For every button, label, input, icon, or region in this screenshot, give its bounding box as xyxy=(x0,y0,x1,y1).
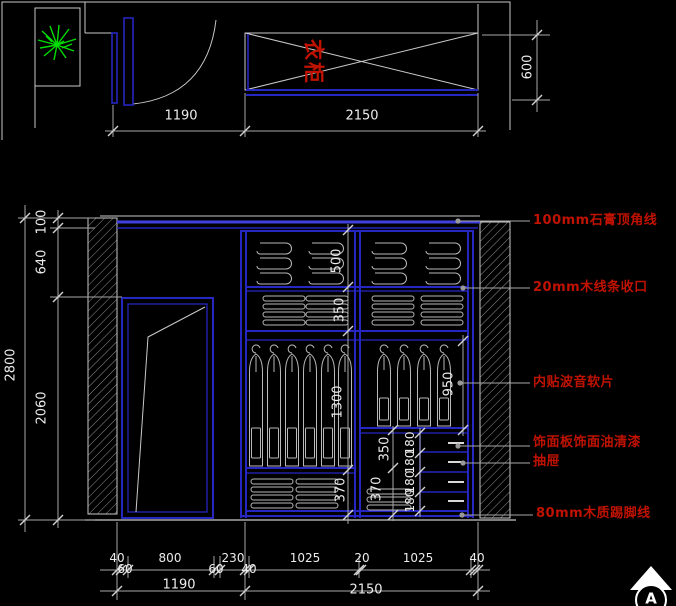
annotation-wood-trim: 20mm木线条收口 xyxy=(533,281,648,295)
plan-door-swing-arc xyxy=(133,20,216,104)
elevation-marker-letter: A xyxy=(645,592,657,606)
annotation-crown-molding: 100mm石膏顶角线 xyxy=(533,214,657,228)
bdim-1190: 1190 xyxy=(162,579,195,592)
left-wall-hatch xyxy=(88,218,117,514)
elev-dim-shelf-mid: 350 xyxy=(334,298,347,323)
bdim-40c: 40 xyxy=(469,552,484,564)
plan-wardrobe-label: 衣柜 xyxy=(303,39,324,85)
bottom-folded-flat xyxy=(251,479,411,510)
hanging-clothes-short xyxy=(378,345,451,426)
elev-crown-molding xyxy=(100,216,480,228)
plan-dim-wardrobe: 2150 xyxy=(345,110,378,123)
elev-dim-crown: 100 xyxy=(36,210,49,235)
elev-dim-shelf-top: 500 xyxy=(331,249,344,274)
annotation-skirting: 80mm木质踢脚线 xyxy=(536,507,651,521)
elev-dim-bottom-mid: 370 xyxy=(371,477,384,502)
bdim-40b: 40 xyxy=(241,563,256,575)
plan-wardrobe-box xyxy=(245,33,478,90)
bdim-60a: 60 xyxy=(117,563,132,575)
elev-dim-bottom-left: 370 xyxy=(335,478,348,503)
plan-door-wardrobe-walls xyxy=(112,18,478,105)
shelf-folded-sweaters xyxy=(257,243,461,284)
elev-dim-right-mid: 350 xyxy=(379,437,392,462)
bdim-20: 20 xyxy=(354,552,369,564)
elev-walls xyxy=(85,218,516,520)
plan-view xyxy=(2,2,510,140)
plan-dim-depth: 600 xyxy=(522,55,535,80)
right-wall-hatch xyxy=(480,222,510,518)
plan-door-leaf xyxy=(124,18,133,105)
bdim-1025a: 1025 xyxy=(290,552,321,564)
plan-plant xyxy=(38,25,76,60)
elev-dim-total: 2800 xyxy=(5,348,18,381)
elev-dim-hang-right: 950 xyxy=(443,372,456,397)
bdim-2150: 2150 xyxy=(349,584,382,597)
elev-dim-opening: 2060 xyxy=(36,391,49,424)
drawer-bank xyxy=(420,430,468,516)
drawer-dim-4: 180 xyxy=(404,490,416,513)
elev-door xyxy=(122,298,213,518)
annotation-boeing-film: 内贴波音软片 xyxy=(533,376,614,390)
plan-dim-door: 1190 xyxy=(164,110,197,123)
annotation-drawer: 抽屉 xyxy=(533,455,560,469)
elev-dim-header: 640 xyxy=(36,250,49,275)
bdim-800: 800 xyxy=(159,552,182,564)
elev-dim-hang-left: 1300 xyxy=(332,385,345,418)
plan-door-jamb xyxy=(112,33,117,103)
cad-wardrobe-drawing: 衣柜 1190 2150 600 2800 100 640 2060 500 3… xyxy=(0,0,676,606)
bdim-1025b: 1025 xyxy=(403,552,434,564)
shelf-folded-flat xyxy=(263,296,463,325)
door-leaf-line xyxy=(136,307,205,512)
annotation-veneer-varnish: 饰面板饰面油清漆 xyxy=(533,436,641,450)
